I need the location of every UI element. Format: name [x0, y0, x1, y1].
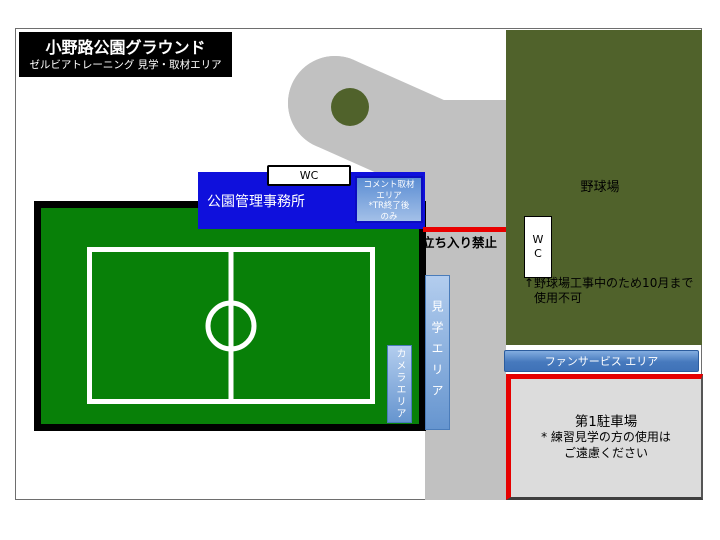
baseball-wc-line2: C [534, 247, 542, 261]
camera-area: カメラエリア [387, 345, 412, 423]
viewing-area-label: 見学エリア [429, 300, 446, 405]
baseball-construction-notice: ↑野球場工事中のため10月まで 使用不可 [524, 276, 709, 305]
baseball-field-label: 野球場 [540, 176, 660, 195]
slide-title-box: 小野路公園グラウンド ゼルビアトレーニング 見学・取材エリア [19, 32, 232, 77]
baseball-wc-line1: W [533, 233, 544, 247]
slide-canvas: 野球場 W C ↑野球場工事中のため10月まで 使用不可 公園管理事務所 WC … [0, 0, 720, 540]
roundabout-circle [331, 88, 369, 126]
comment-line1: コメント取材 [357, 180, 421, 191]
notice-line1: ↑野球場工事中のため10月まで [524, 276, 709, 291]
comment-line4: のみ [357, 212, 421, 223]
page-title: 小野路公園グラウンド [45, 38, 205, 58]
camera-area-label: カメラエリア [392, 348, 407, 420]
parking-lot-1: 第1駐車場 * 練習見学の方の使用は ご遠慮ください [506, 374, 703, 500]
fan-service-label: ファンサービス エリア [545, 353, 659, 369]
no-entry-label: 立ち入り禁止 [422, 232, 508, 251]
office-wc-box: WC [267, 165, 351, 186]
parking-title: 第1駐車場 [575, 415, 638, 431]
soccer-field [34, 201, 426, 431]
baseball-wc-box: W C [524, 216, 552, 278]
comment-line3: *TR終了後 [357, 201, 421, 212]
parking-note-line1: * 練習見学の方の使用は [541, 430, 671, 446]
fan-service-area: ファンサービス エリア [504, 350, 699, 372]
office-wc-label: WC [300, 169, 319, 182]
viewing-area: 見学エリア [425, 275, 450, 430]
office-label: 公園管理事務所 [207, 191, 305, 211]
page-subtitle: ゼルビアトレーニング 見学・取材エリア [29, 58, 221, 72]
parking-note-line2: ご遠慮ください [564, 446, 648, 462]
comment-interview-area: コメント取材 エリア *TR終了後 のみ [355, 176, 423, 223]
comment-line2: エリア [357, 191, 421, 202]
notice-line2: 使用不可 [524, 291, 709, 306]
no-entry-line [423, 227, 506, 232]
